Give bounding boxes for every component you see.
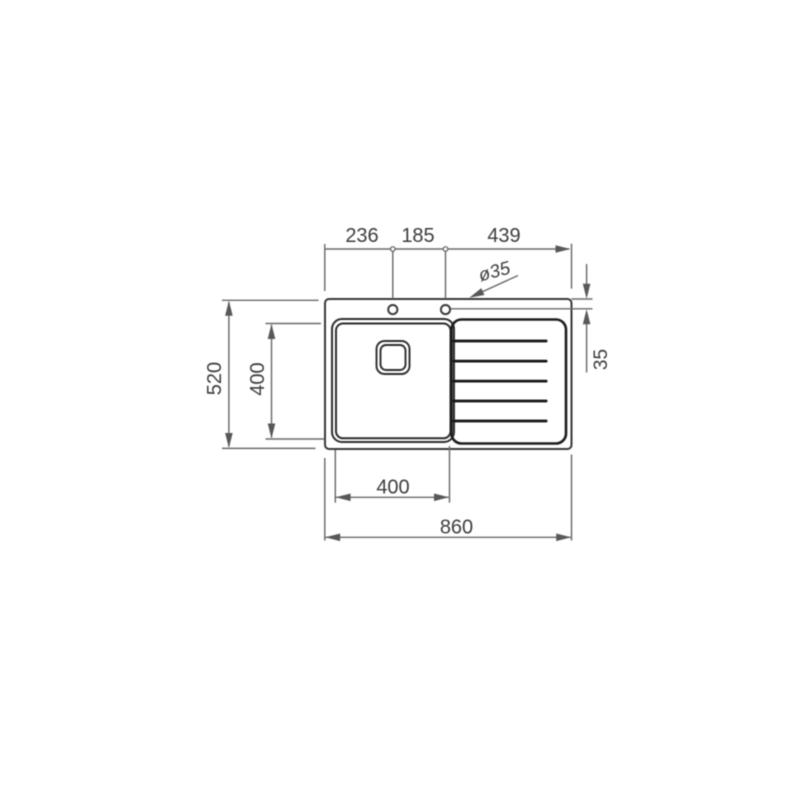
svg-text:400: 400	[247, 362, 269, 395]
svg-text:185: 185	[401, 225, 434, 247]
svg-text:520: 520	[204, 362, 226, 395]
svg-text:439: 439	[487, 225, 520, 247]
svg-text:400: 400	[376, 477, 409, 499]
svg-text:236: 236	[345, 225, 378, 247]
svg-text:860: 860	[440, 517, 473, 539]
svg-text:35: 35	[591, 349, 612, 370]
